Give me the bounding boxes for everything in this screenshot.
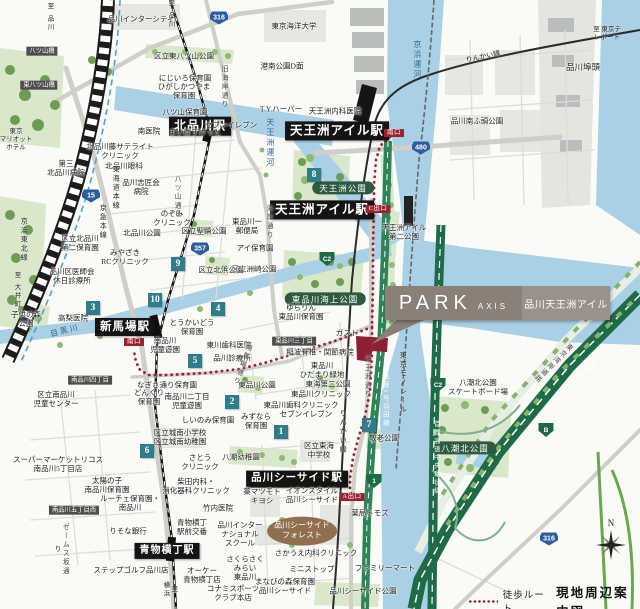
logo-axis: AXIS: [478, 302, 508, 311]
map-legend: 徒歩ルート 現地周辺案内図: [468, 582, 640, 609]
map-title: 現地周辺案内図: [556, 582, 640, 609]
logo-park: PARK: [399, 292, 472, 315]
compass-rose: N: [594, 518, 628, 567]
walking-route-legend-line: [468, 600, 498, 603]
walking-route-legend-label: 徒歩ルート: [503, 587, 546, 609]
property-callout: PARK AXIS 品川天王洲アイル: [385, 286, 610, 320]
compass-star-icon: [594, 528, 628, 562]
compass-north-label: N: [594, 518, 628, 528]
area-guide-map: 北品川駅天王洲アイル駅天王洲アイル駅新馬場駅品川シーサイド駅青物横丁駅南口C出口…: [0, 0, 640, 609]
property-name: 品川天王洲アイル: [522, 286, 610, 320]
park-axis-logo: PARK AXIS: [385, 286, 522, 320]
